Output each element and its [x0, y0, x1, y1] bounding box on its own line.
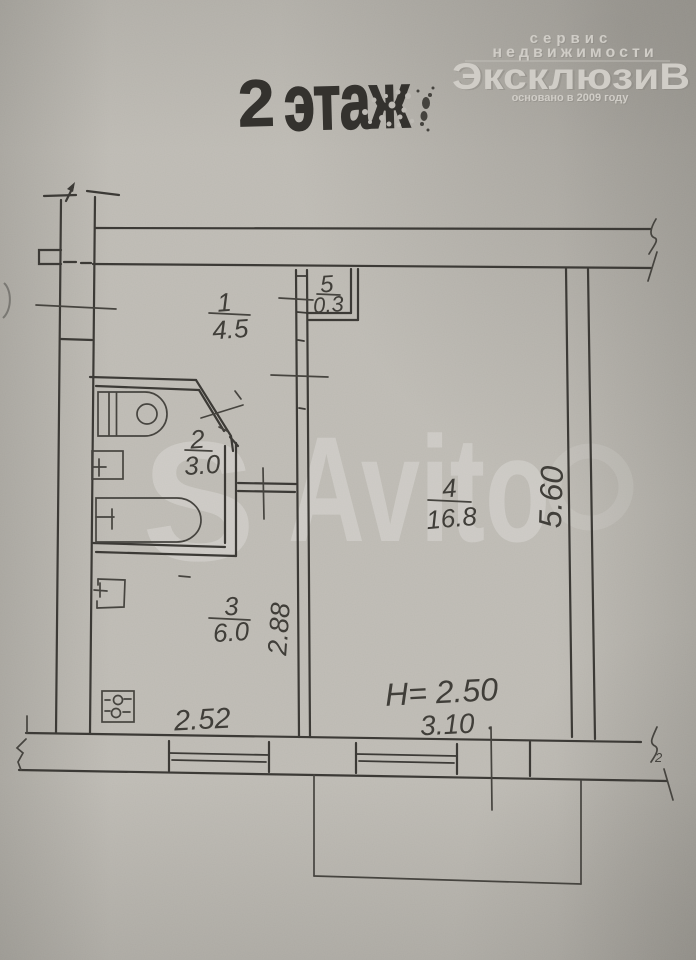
svg-text:0.3: 0.3	[312, 291, 345, 318]
svg-text:3.0: 3.0	[183, 449, 222, 481]
svg-text:2.88: 2.88	[262, 602, 296, 658]
svg-text:основано в 2009 году: основано в 2009 году	[512, 92, 630, 104]
svg-text:4.5: 4.5	[211, 313, 250, 345]
svg-text:4: 4	[441, 472, 458, 503]
svg-text:2: 2	[654, 750, 663, 765]
svg-text:5.60: 5.60	[532, 465, 570, 529]
svg-text:ЭксклюзиВ: ЭксклюзиВ	[452, 56, 690, 97]
svg-text:2.52: 2.52	[172, 703, 231, 738]
svg-text:6.0: 6.0	[212, 616, 251, 648]
svg-text:2: 2	[237, 65, 276, 140]
svg-text:H= 2.50: H= 2.50	[384, 671, 499, 713]
svg-text:Avito: Avito	[288, 405, 550, 573]
svg-text:16.8: 16.8	[425, 501, 479, 535]
svg-text:этаж: этаж	[283, 55, 412, 147]
svg-text:3.10: 3.10	[419, 708, 475, 742]
